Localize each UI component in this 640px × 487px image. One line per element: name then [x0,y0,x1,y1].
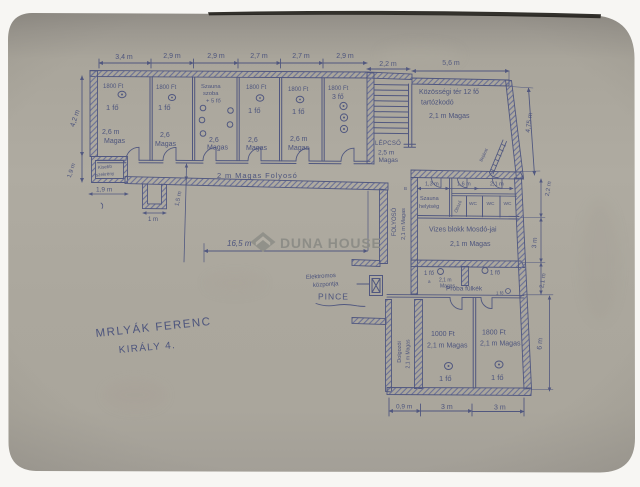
svg-text:1800 Ft: 1800 Ft [482,330,506,337]
svg-text:1800 Ft: 1800 Ft [246,85,267,91]
svg-text:2,6 m: 2,6 m [290,136,308,143]
svg-text:1000 Ft: 1000 Ft [431,331,455,338]
svg-text:2,6: 2,6 [248,137,258,144]
svg-text:Szauna: Szauna [420,196,440,202]
svg-text:Próba fülkék: Próba fülkék [446,286,483,293]
svg-text:2,7 m: 2,7 m [250,53,268,60]
svg-text:1 fő: 1 fő [106,103,119,112]
svg-text:WC: WC [504,201,513,207]
svg-text:1800 Ft: 1800 Ft [288,87,309,93]
svg-text:2,9 m: 2,9 m [336,53,354,60]
svg-text:1 m: 1 m [148,217,158,223]
svg-text:3 m: 3 m [531,237,539,248]
svg-text:1,9 m: 1,9 m [96,187,112,194]
svg-text:Magas: Magas [104,138,126,145]
svg-text:2,1 m Magas: 2,1 m Magas [427,343,468,350]
svg-text:helyiség: helyiség [419,204,439,210]
svg-text:3,4 m: 3,4 m [115,54,133,61]
svg-text:1800 Ft: 1800 Ft [103,84,124,90]
svg-text:2,1 m Magas: 2,1 m Magas [406,339,412,368]
svg-text:2,9 m: 2,9 m [163,53,181,60]
svg-text:Dolgozói: Dolgozói [397,341,403,362]
svg-text:LÉPCSŐ: LÉPCSŐ [375,140,401,147]
svg-text:6 m: 6 m [537,338,545,350]
svg-text:Vizes blokk Mosdó-jai: Vizes blokk Mosdó-jai [429,227,497,234]
svg-text:Magas: Magas [288,145,310,152]
svg-text:0,9 m: 0,9 m [396,404,412,411]
svg-text:WC: WC [469,201,478,207]
svg-text:2,1 m Magas: 2,1 m Magas [401,208,407,240]
svg-text:2,9 m: 2,9 m [207,53,225,60]
svg-text:1 fő: 1 fő [439,374,452,383]
svg-text:2,1 m Magas: 2,1 m Magas [480,341,521,348]
svg-text:FOLYOSÓ: FOLYOSÓ [391,207,398,236]
svg-text:Magas: Magas [246,145,268,152]
svg-text:1 fő: 1 fő [491,373,504,382]
svg-text:2,1 m Magas: 2,1 m Magas [429,113,470,120]
svg-text:DUNA HOUSE: DUNA HOUSE [280,235,382,251]
svg-text:3 m: 3 m [494,405,506,412]
svg-text:Magas: Magas [155,141,177,148]
svg-text:3 fő: 3 fő [332,94,344,101]
svg-text:1 fő: 1 fő [424,271,435,277]
svg-text:PINCE: PINCE [318,292,349,302]
svg-text:2,6: 2,6 [160,132,170,139]
svg-text:1 fő: 1 fő [158,103,171,112]
svg-text:B: B [404,186,407,191]
svg-text:2,5 m: 2,5 m [378,150,394,157]
svg-text:tartózkodó: tartózkodó [421,100,454,107]
svg-text:+ 5 fő: + 5 fő [206,99,221,105]
svg-text:Magas: Magas [207,145,229,152]
svg-text:1 fő: 1 fő [496,291,504,296]
svg-text:3 m: 3 m [441,404,453,411]
svg-text:WC: WC [487,201,496,207]
svg-text:2,7 m: 2,7 m [292,53,310,60]
svg-text:1800 Ft: 1800 Ft [156,85,177,91]
svg-text:szoba: szoba [203,91,219,97]
svg-text:16,5 m: 16,5 m [227,239,252,248]
svg-text:2,6 m: 2,6 m [102,129,120,136]
svg-text:Magas: Magas [379,157,399,164]
svg-text:2,6: 2,6 [209,137,219,144]
svg-text:Közösségi tér 12 fő: Közösségi tér 12 fő [419,89,479,96]
svg-text:2,1 m Magas: 2,1 m Magas [450,241,491,248]
svg-text:1800 Ft: 1800 Ft [328,86,349,92]
svg-text:Szauna: Szauna [201,84,221,90]
svg-text:1 fő: 1 fő [248,106,261,115]
svg-text:1 fő: 1 fő [490,271,501,277]
svg-text:1,6 m: 1,6 m [457,182,471,188]
svg-text:1 fő: 1 fő [292,107,305,116]
